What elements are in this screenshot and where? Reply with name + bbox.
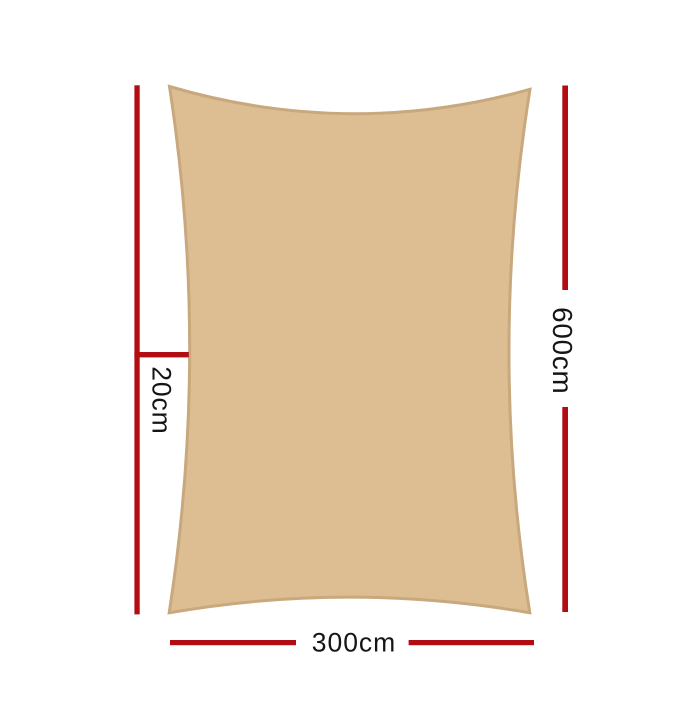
svg-text:600cm: 600cm — [547, 307, 578, 394]
svg-text:300cm: 300cm — [312, 628, 397, 658]
svg-text:20cm: 20cm — [147, 366, 177, 434]
